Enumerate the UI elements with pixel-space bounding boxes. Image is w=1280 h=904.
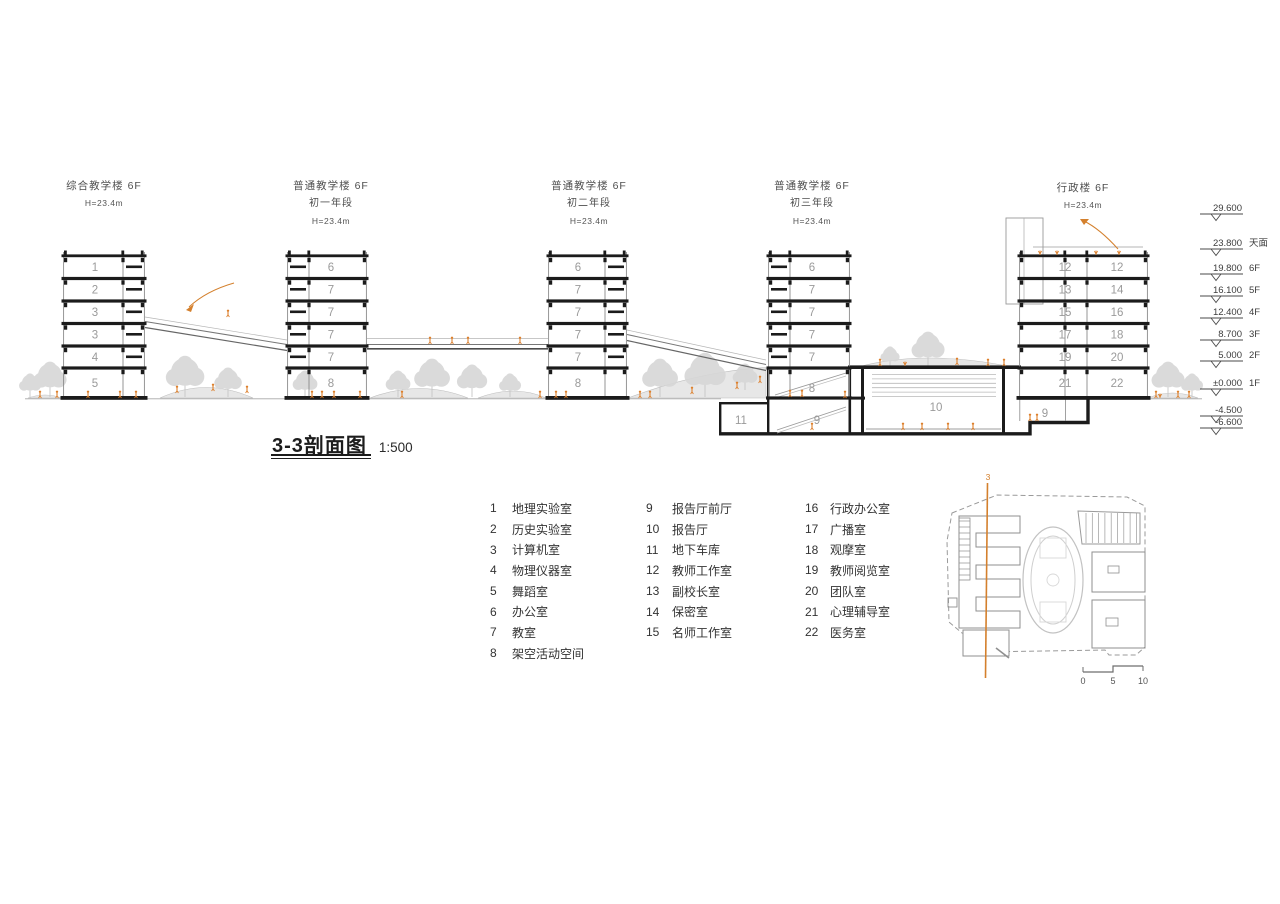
drawing-text: 5.000 — [1218, 350, 1242, 361]
drawing-text: 7 — [328, 352, 334, 364]
legend-item-number: 8 — [490, 646, 512, 660]
drawing-text: 15 — [1059, 307, 1072, 319]
drawing-text: 21 — [1059, 378, 1072, 390]
building-header: 普通教学楼 6F初一年段H=23.4m — [293, 177, 369, 230]
drawing-text: 10 — [1138, 676, 1148, 686]
legend-item: 6办公室 — [490, 601, 584, 622]
legend-item-label: 地理实验室 — [512, 500, 572, 517]
building-name: 行政楼 6F — [1057, 179, 1110, 197]
section-drawing-page: 1233456777786777786777712121314151617181… — [0, 0, 1280, 904]
drawing-text: 3F — [1249, 329, 1260, 340]
legend-item-label: 历史实验室 — [512, 521, 572, 538]
building-header: 综合教学楼 6FH=23.4m — [66, 177, 142, 212]
drawing-text: 2F — [1249, 350, 1260, 361]
drawing-text: 20 — [1111, 352, 1124, 364]
legend-item-number: 13 — [646, 584, 672, 598]
legend-item-label: 教师工作室 — [672, 562, 732, 579]
legend-item-number: 19 — [805, 563, 830, 577]
building-height: H=23.4m — [551, 213, 627, 230]
legend-item-number: 21 — [805, 605, 830, 619]
legend-item-number: 12 — [646, 563, 672, 577]
legend-item: 10报告厅 — [646, 519, 732, 540]
legend-item-label: 副校长室 — [672, 583, 720, 600]
drawing-text: 7 — [575, 352, 581, 364]
legend-item: 20团队室 — [805, 581, 890, 602]
legend-item-label: 地下车库 — [672, 541, 720, 558]
drawing-text: 23.800 — [1213, 238, 1242, 249]
legend-item: 2历史实验室 — [490, 519, 584, 540]
drawing-text: 7 — [328, 285, 334, 297]
drawing-text: 14 — [1111, 285, 1124, 297]
elevation-marker: 23.800天面 — [1200, 238, 1268, 256]
legend-item-number: 16 — [805, 501, 830, 515]
building-name: 普通教学楼 6F — [551, 177, 627, 195]
legend-item-number: 17 — [805, 522, 830, 536]
drawing-text: 7 — [809, 330, 815, 342]
legend-item-label: 心理辅导室 — [830, 603, 890, 620]
drawing-text: 2 — [92, 285, 98, 297]
drawing-text: 7 — [809, 285, 815, 297]
drawing-text: 8 — [809, 383, 815, 395]
building-name: 普通教学楼 6F — [774, 177, 850, 195]
drawing-text: -4.500 — [1215, 405, 1242, 416]
drawing-text: 12 — [1111, 262, 1124, 274]
drawing-text: 9 — [1042, 408, 1048, 420]
legend-item: 8架空活动空间 — [490, 643, 584, 664]
drawing-text: 6 — [575, 262, 581, 274]
legend-item-number: 1 — [490, 501, 512, 515]
legend-item-number: 14 — [646, 605, 672, 619]
drawing-text: 6 — [809, 262, 815, 274]
legend-item-label: 广播室 — [830, 521, 866, 538]
legend-item: 7教室 — [490, 622, 584, 643]
legend-item-label: 行政办公室 — [830, 500, 890, 517]
drawing-text: 3 — [986, 472, 991, 482]
mound — [160, 388, 253, 399]
legend-item-number: 7 — [490, 625, 512, 639]
building-name: 普通教学楼 6F — [293, 177, 369, 195]
drawing-text: 11 — [735, 415, 747, 427]
drawing-text: 3 — [92, 307, 98, 319]
elevation-marker: 12.4004F — [1200, 307, 1260, 325]
mound — [478, 391, 546, 398]
drawing-text: 3 — [92, 330, 98, 342]
drawing-text: 1 — [92, 262, 98, 274]
building-height: H=23.4m — [293, 213, 369, 230]
building-name: 综合教学楼 6F — [66, 177, 142, 195]
legend-item-label: 舞蹈室 — [512, 583, 548, 600]
elevation-marker: -6.600 — [1200, 417, 1243, 435]
site-key-plan: 30510 — [947, 472, 1148, 686]
drawing-text: 6F — [1249, 263, 1260, 274]
drawing-text: 7 — [575, 307, 581, 319]
legend-item-number: 15 — [646, 625, 672, 639]
legend-item: 18观摩室 — [805, 539, 890, 560]
drawing-text: 7 — [575, 285, 581, 297]
legend-item-label: 教师阅览室 — [830, 562, 890, 579]
drawing-text: 9 — [814, 415, 820, 427]
legend-item-number: 20 — [805, 584, 830, 598]
elevation-marker: 19.8006F — [1200, 263, 1260, 281]
drawing-text: 8 — [328, 378, 334, 390]
legend-column-1: 1地理实验室2历史实验室3计算机室4物理仪器室5舞蹈室6办公室7教室8架空活动空… — [490, 498, 584, 664]
building-grade: 初三年段 — [774, 195, 850, 213]
elevation-marker: 16.1005F — [1200, 285, 1260, 303]
legend-item-number: 6 — [490, 605, 512, 619]
legend-item: 14保密室 — [646, 601, 732, 622]
drawing-text: 12 — [1059, 262, 1072, 274]
legend-item-label: 教室 — [512, 624, 536, 641]
drawing-text: 22 — [1111, 378, 1124, 390]
elevation-marker: 29.600 — [1200, 203, 1243, 221]
building-header: 普通教学楼 6F初三年段H=23.4m — [774, 177, 850, 230]
mound — [370, 389, 468, 399]
drawing-text: 5F — [1249, 285, 1260, 296]
leader-arrows — [186, 219, 1118, 312]
legend-column-2: 9报告厅前厅10报告厅11地下车库12教师工作室13副校长室14保密室15名师工… — [646, 498, 732, 643]
drawing-text: 8.700 — [1218, 329, 1242, 340]
drawing-text: 7 — [328, 330, 334, 342]
legend-item-number: 10 — [646, 522, 672, 536]
building-header: 普通教学楼 6F初二年段H=23.4m — [551, 177, 627, 230]
room-labels: 8910911 — [735, 383, 1048, 427]
legend-item-number: 5 — [490, 584, 512, 598]
drawing-text: 4 — [92, 352, 99, 364]
site-scale-bar — [1083, 666, 1143, 672]
elevation-marker: 5.0002F — [1200, 350, 1260, 368]
legend-item: 19教师阅览室 — [805, 560, 890, 581]
legend-item-label: 办公室 — [512, 603, 548, 620]
building-grade: 初一年段 — [293, 195, 369, 213]
drawing-text: 7 — [809, 352, 815, 364]
legend-item: 9报告厅前厅 — [646, 498, 732, 519]
drawing-text: 18 — [1111, 330, 1124, 342]
drawing-text: 10 — [930, 402, 943, 414]
legend-item: 12教师工作室 — [646, 560, 732, 581]
legend-item-label: 名师工作室 — [672, 624, 732, 641]
drawing-text: 5 — [92, 378, 98, 390]
building-section: 67777 — [766, 251, 852, 400]
drawing-text: 4F — [1249, 307, 1260, 318]
drawing-text: -6.600 — [1215, 417, 1242, 428]
legend-item: 11地下车库 — [646, 539, 732, 560]
legend-item-number: 18 — [805, 543, 830, 557]
drawing-text: 16 — [1111, 307, 1124, 319]
legend-item: 3计算机室 — [490, 539, 584, 560]
elevation-marker: 8.7003F — [1200, 329, 1260, 347]
legend-item-label: 保密室 — [672, 603, 708, 620]
legend-item: 21心理辅导室 — [805, 601, 890, 622]
legend-item-number: 9 — [646, 501, 672, 515]
drawing-text: 1F — [1249, 378, 1260, 389]
drawing-text: 7 — [328, 307, 334, 319]
drawing-scale: 1:500 — [379, 440, 413, 455]
drawing-text: 29.600 — [1213, 203, 1242, 214]
site-parking — [1078, 511, 1140, 544]
legend-item-label: 团队室 — [830, 583, 866, 600]
legend-item-label: 报告厅前厅 — [672, 500, 732, 517]
legend-item: 1地理实验室 — [490, 498, 584, 519]
drawing-text: 17 — [1059, 330, 1072, 342]
legend-item-label: 计算机室 — [512, 541, 560, 558]
drawing-text: 5 — [1110, 676, 1115, 686]
legend-item-number: 4 — [490, 563, 512, 577]
drawing-text: 0 — [1080, 676, 1085, 686]
legend-item-label: 医务室 — [830, 624, 866, 641]
building-section: 123345 — [61, 251, 148, 400]
legend-column-3: 16行政办公室17广播室18观摩室19教师阅览室20团队室21心理辅导室22医务… — [805, 498, 890, 643]
drawing-text: 天面 — [1249, 238, 1268, 249]
drawing-text: 6 — [328, 262, 334, 274]
building-section: 677778 — [546, 251, 630, 400]
drawing-text: 13 — [1059, 285, 1072, 297]
legend-item-label: 报告厅 — [672, 521, 708, 538]
legend-item: 13副校长室 — [646, 581, 732, 602]
legend-item: 15名师工作室 — [646, 622, 732, 643]
building-height: H=23.4m — [66, 195, 142, 212]
legend-item-number: 22 — [805, 625, 830, 639]
legend-item-label: 架空活动空间 — [512, 645, 584, 662]
building-grade: 初二年段 — [551, 195, 627, 213]
roof-shaft — [1006, 218, 1043, 304]
building-header: 行政楼 6FH=23.4m — [1057, 179, 1110, 214]
legend-item: 16行政办公室 — [805, 498, 890, 519]
legend-item-label: 观摩室 — [830, 541, 866, 558]
drawing-text: 12.400 — [1213, 307, 1242, 318]
legend-item: 5舞蹈室 — [490, 581, 584, 602]
building-height: H=23.4m — [1057, 197, 1110, 214]
section-drawing-svg: 1233456777786777786777712121314151617181… — [0, 0, 1280, 904]
bridges — [145, 317, 766, 371]
drawing-text: ±0.000 — [1213, 378, 1242, 389]
drawing-text: 19 — [1059, 352, 1072, 364]
title-underline — [271, 454, 371, 459]
legend-item-label: 物理仪器室 — [512, 562, 572, 579]
drawing-text: 7 — [809, 307, 815, 319]
elevation-marker: ±0.0001F — [1200, 378, 1260, 396]
legend-item: 22医务室 — [805, 622, 890, 643]
legend-item: 17广播室 — [805, 519, 890, 540]
legend-item-number: 2 — [490, 522, 512, 536]
trees — [19, 332, 1203, 397]
drawing-text: 8 — [575, 378, 581, 390]
drawing-text: 16.100 — [1213, 285, 1242, 296]
legend-item: 4物理仪器室 — [490, 560, 584, 581]
legend-item-number: 11 — [646, 543, 672, 557]
building-height: H=23.4m — [774, 213, 850, 230]
legend-item-number: 3 — [490, 543, 512, 557]
elevation-markers: 29.60023.800天面19.8006F16.1005F12.4004F8.… — [1200, 203, 1268, 435]
drawing-text: 7 — [575, 330, 581, 342]
drawing-text: 19.800 — [1213, 263, 1242, 274]
